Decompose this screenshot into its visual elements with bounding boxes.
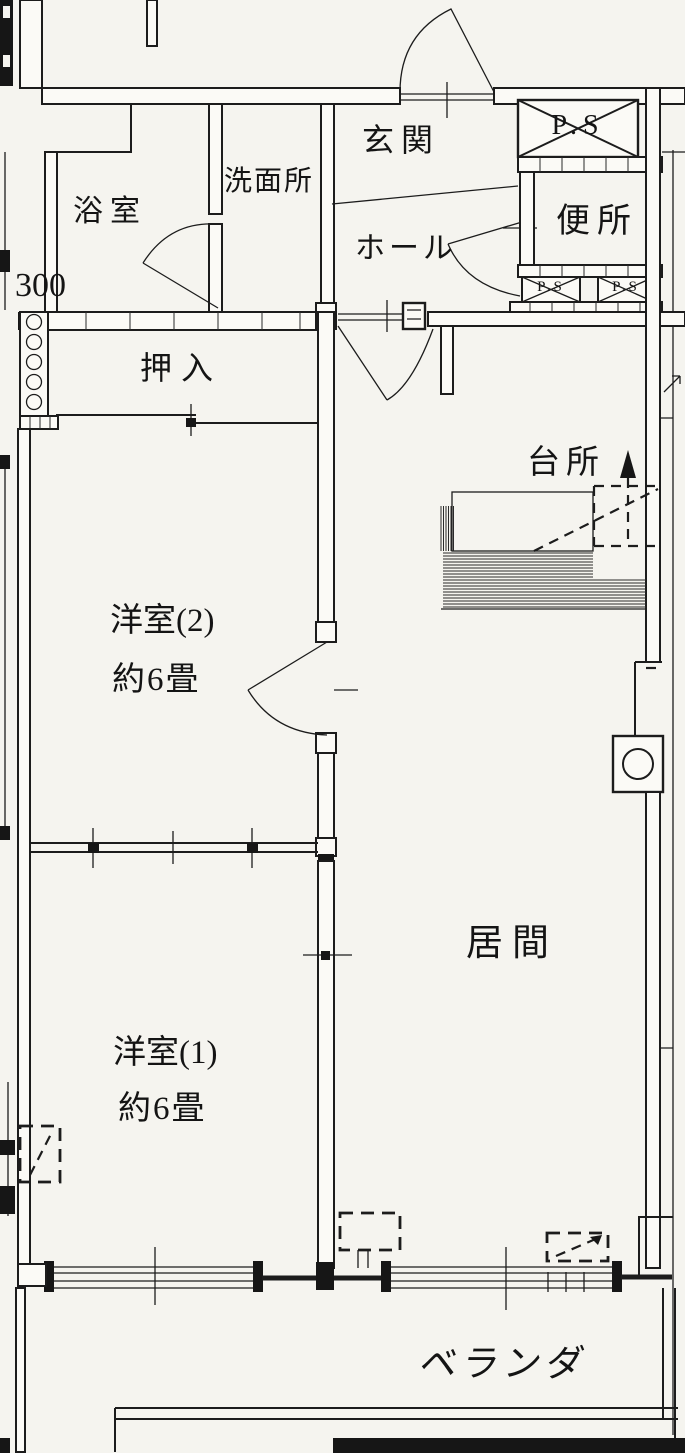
label-washroom: 洗面所 <box>224 167 314 196</box>
label-kitchen: 台所 <box>527 446 605 481</box>
label-pipe-space-top: P.S <box>518 111 638 140</box>
entrance-step-line <box>332 186 518 204</box>
label-pipe-space-left: P.S <box>522 280 580 296</box>
equipment-dashed-boxes <box>20 1126 608 1268</box>
label-western-room-1: 洋室(1) <box>113 1036 217 1071</box>
floor-plan: 浴室 洗面所 玄関 P.S 便所 ホール P.S P.S 300 押入 台所 洋… <box>0 0 685 1453</box>
label-closet: 押入 <box>140 352 222 386</box>
label-entrance: 玄関 <box>362 124 440 158</box>
room-divider-sliding <box>30 828 318 868</box>
bath-door-arc <box>143 224 218 308</box>
label-hall: ホール <box>355 233 457 265</box>
label-western-room-2-size: 約6畳 <box>112 663 201 698</box>
living-entry-door-arc <box>338 326 433 400</box>
label-toilet: 便所 <box>556 204 638 240</box>
label-western-room-2: 洋室(2) <box>110 604 214 639</box>
label-bath: 浴室 <box>73 196 147 228</box>
label-dimension-300: 300 <box>15 268 66 304</box>
western-room2-door-arc <box>248 642 327 735</box>
entrance-door-arc <box>400 9 494 92</box>
label-veranda: ベランダ <box>417 1346 592 1385</box>
label-pipe-space-right: P.S <box>598 280 654 296</box>
label-western-room-1-size: 約6畳 <box>118 1092 207 1127</box>
label-living-room: 居間 <box>466 925 558 964</box>
